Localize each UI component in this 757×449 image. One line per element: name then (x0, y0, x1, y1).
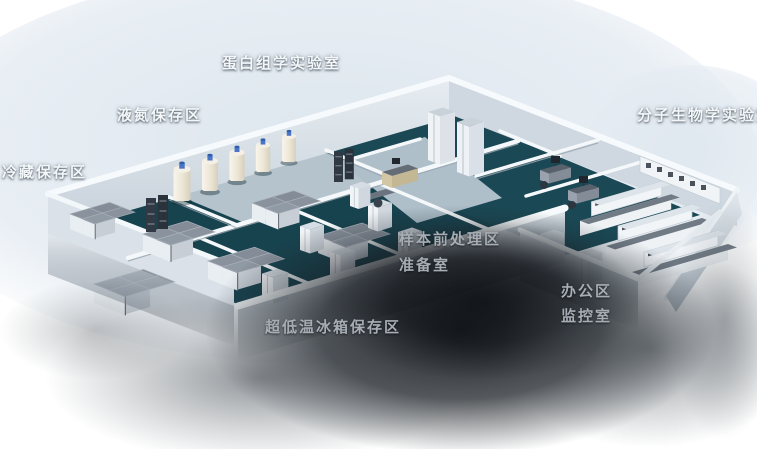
area-label-preparation-room: 准备室 (399, 258, 450, 273)
floorplan-3d-render (0, 0, 757, 449)
area-label-proteomics-lab: 蛋白组学实验室 (222, 56, 341, 71)
area-label-sample-pretreatment: 样本前处理区 (399, 232, 501, 247)
area-label-ult-freezer-storage: 超低温冰箱保存区 (265, 320, 401, 335)
area-label-liquid-nitrogen-storage: 液氮保存区 (117, 108, 202, 123)
lab-floorplan-screenshot: 蛋白组学实验室 液氮保存区 冷藏保存区 分子生物学实验室 样本前处理区 准备室 … (0, 0, 757, 449)
area-label-cold-storage: 冷藏保存区 (2, 165, 87, 180)
area-label-office-area: 办公区 (561, 284, 612, 299)
area-label-monitoring-room: 监控室 (561, 309, 612, 324)
area-label-molecular-biology-lab: 分子生物学实验室 (637, 108, 757, 123)
